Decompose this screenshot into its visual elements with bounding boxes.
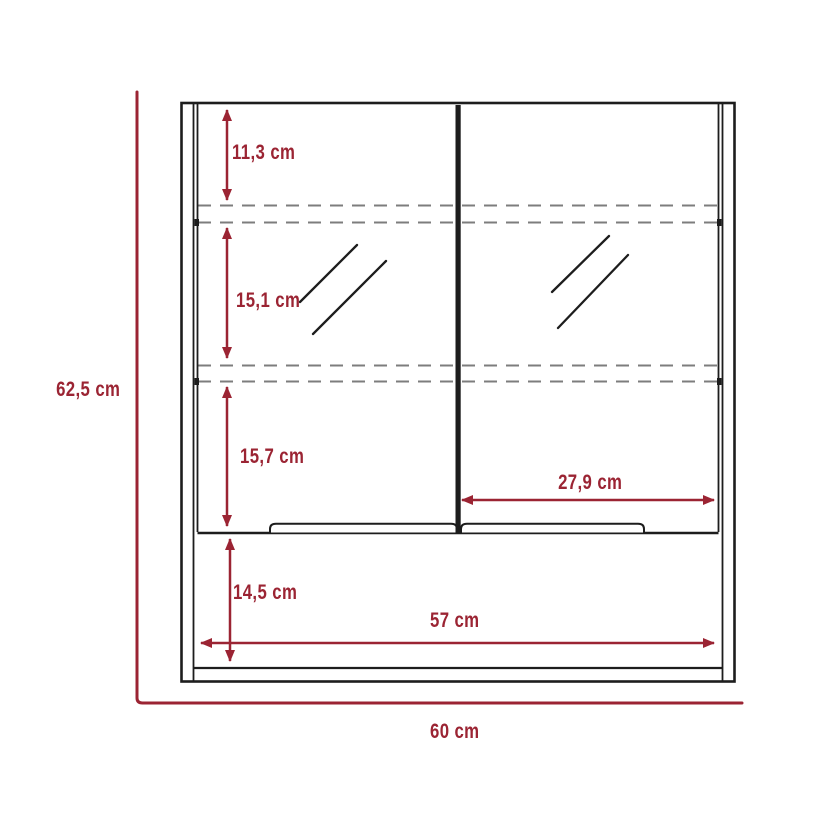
overall-width-label: 60 cm	[385, 719, 525, 743]
open-shelf-label: 14,5 cm	[233, 580, 315, 604]
dimension-diagram: 62,5 cm 11,3 cm 15,1 cm 15,7 cm 14,5 cm …	[0, 0, 840, 840]
lower-compartment-label: 15,7 cm	[240, 444, 322, 468]
right-mirror-glyph	[552, 236, 628, 328]
middle-compartment-label: 15,1 cm	[236, 288, 318, 312]
interior-width-label: 57 cm	[385, 608, 525, 632]
right-door-width-label: 27,9 cm	[520, 470, 660, 494]
center-divider	[456, 105, 461, 533]
overall-height-label: 62,5 cm	[18, 377, 158, 401]
left-door-handle	[270, 524, 457, 533]
right-door-handle	[461, 524, 644, 533]
mirror-glyphs	[300, 236, 628, 334]
top-compartment-label: 11,3 cm	[232, 140, 313, 164]
cabinet-line-drawing	[0, 0, 840, 840]
